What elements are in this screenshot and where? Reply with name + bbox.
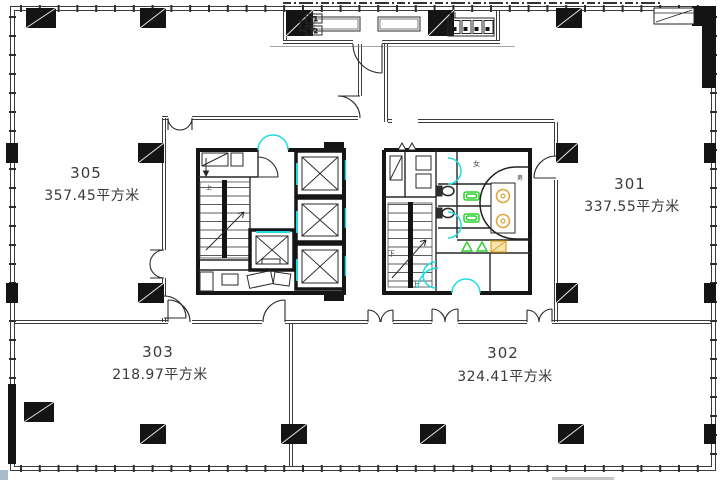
floor-plan: Y1 Y2 <box>0 0 725 480</box>
screen-artifacts <box>0 470 614 480</box>
svg-text:302: 302 <box>487 344 519 362</box>
room-label-301: 301 337.55平方米 <box>584 175 680 215</box>
stair-up-label: 上 <box>206 184 212 192</box>
svg-text:324.41平方米: 324.41平方米 <box>457 369 553 385</box>
room-label-302: 302 324.41平方米 <box>457 344 553 385</box>
perimeter-curtain-wall <box>11 3 716 471</box>
staircase-right: 下 上 <box>388 202 432 289</box>
women-room-label: 女 <box>473 159 480 168</box>
svg-text:337.55平方米: 337.55平方米 <box>584 199 680 215</box>
svg-text:357.45平方米: 357.45平方米 <box>44 188 140 204</box>
svg-text:305: 305 <box>70 164 102 182</box>
staircase-left: 上 <box>200 180 250 258</box>
stair-down-label: 下 <box>388 250 395 258</box>
entrance-lobby: Y1 Y2 <box>300 13 494 36</box>
svg-text:303: 303 <box>142 343 174 361</box>
electrical-panels <box>448 13 494 36</box>
svg-text:301: 301 <box>614 175 646 193</box>
core-left: 上 <box>196 148 346 295</box>
core-right: 下 上 <box>382 143 532 295</box>
men-room-label: 男 <box>517 175 523 182</box>
room-label-303: 303 218.97平方米 <box>112 343 208 383</box>
floor-plan-canvas: Y1 Y2 <box>0 0 725 480</box>
room-labels: 305 357.45平方米 301 337.55平方米 303 218.97平方… <box>44 164 680 385</box>
room-label-305: 305 357.45平方米 <box>44 164 140 204</box>
riser-label-y1: Y1 <box>309 16 318 23</box>
svg-text:218.97平方米: 218.97平方米 <box>112 367 208 383</box>
interior-walls <box>14 11 712 467</box>
corner-canopy-detail <box>654 6 716 88</box>
riser-label-y2: Y2 <box>309 28 318 35</box>
